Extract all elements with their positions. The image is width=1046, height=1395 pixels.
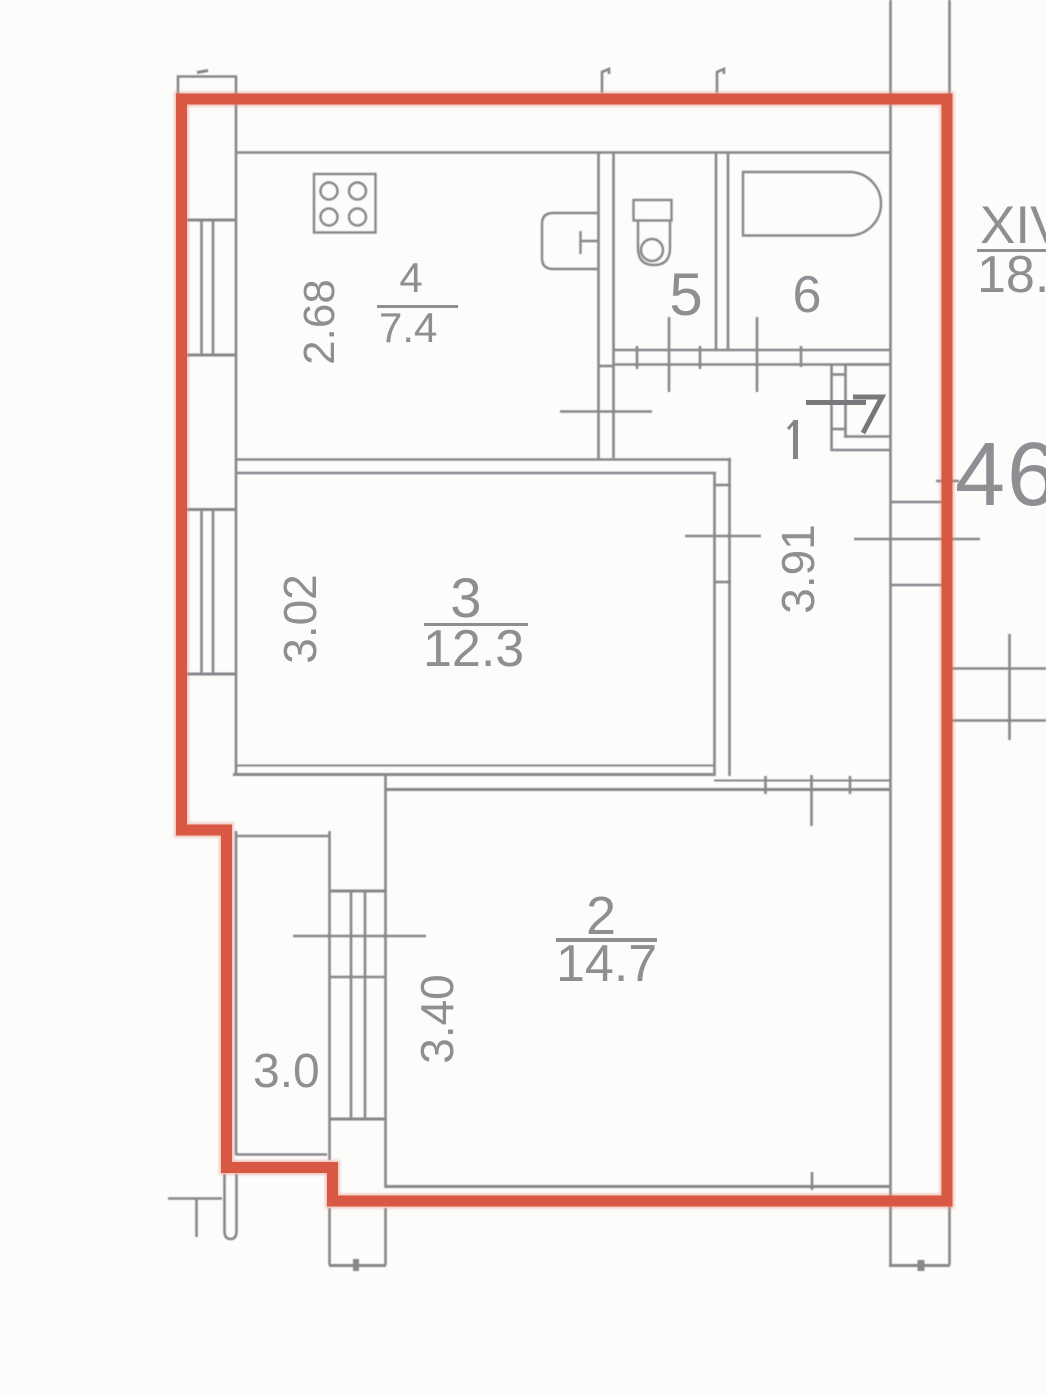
svg-text:12.3: 12.3 [423,620,524,678]
svg-text:6: 6 [793,266,822,324]
svg-text:3.0: 3.0 [253,1045,320,1098]
svg-text:7.4: 7.4 [379,304,437,351]
svg-text:3.40: 3.40 [411,974,463,1064]
svg-text:46: 46 [955,425,1046,525]
svg-text:5: 5 [669,261,702,328]
svg-text:18.: 18. [977,246,1046,304]
svg-text:14.7: 14.7 [556,935,657,993]
svg-text:3.02: 3.02 [274,574,326,664]
svg-text:2.68: 2.68 [295,279,344,365]
svg-text:3.91: 3.91 [772,524,824,614]
svg-text:4: 4 [399,254,422,301]
